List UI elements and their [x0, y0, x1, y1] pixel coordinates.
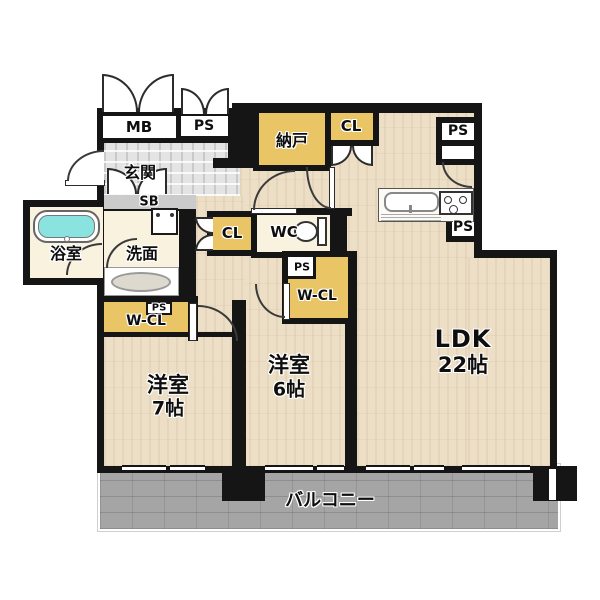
laundry-pan — [151, 208, 178, 235]
label-wcl-left: W-CL — [126, 313, 166, 329]
label-closet-mid: CL — [222, 224, 243, 242]
vanity-basin — [111, 272, 171, 292]
label-room6-size: 6帖 — [273, 375, 305, 402]
mb-door-left — [102, 74, 138, 112]
ps-door-left — [181, 88, 205, 114]
label-mb: MB — [126, 118, 152, 136]
label-balcony: バルコニー — [285, 486, 375, 512]
vanity-counter — [104, 267, 179, 296]
label-ps-kitchen-bottom: PS — [453, 219, 473, 235]
label-ps-wcl-left: PS — [152, 303, 167, 314]
label-wc: WC — [270, 223, 298, 241]
window-ldk-c — [462, 465, 530, 472]
toilet-tank — [317, 217, 327, 246]
ps-door-right — [205, 88, 229, 114]
label-genkan: 玄関 — [124, 159, 156, 183]
wall-washroom-hall — [179, 205, 192, 302]
window-ldk-a — [366, 465, 410, 472]
bathtub-water — [38, 215, 95, 238]
label-ps-kitchen-top: PS — [448, 123, 468, 139]
kitchen-counter — [378, 188, 474, 222]
kitchen-stove — [439, 191, 473, 215]
window-ldk-b — [414, 465, 444, 472]
label-ps-wcl-right: PS — [294, 261, 310, 274]
bathtub — [33, 210, 100, 243]
balcony-pillar — [222, 466, 265, 501]
floor-plan: MB PS 玄関 SB 浴室 洗面 納戸 CL PS PS CL WC PS W… — [0, 0, 600, 600]
room7-door-leaf — [189, 303, 197, 341]
label-sb: SB — [139, 195, 158, 210]
window-room6-b — [317, 465, 344, 472]
label-ldk-size: 22帖 — [438, 349, 488, 379]
label-room7-size: 7帖 — [152, 394, 184, 421]
label-ps-top: PS — [194, 118, 214, 134]
label-closet-top: CL — [341, 117, 362, 135]
balcony-divider-slit — [549, 469, 556, 500]
kitchen-counter-front — [381, 212, 441, 221]
window-room7-a — [122, 465, 166, 472]
label-wcl-right: W-CL — [297, 288, 337, 304]
mb-door-right — [138, 74, 174, 112]
window-room7-b — [170, 465, 205, 472]
toilet — [294, 217, 328, 247]
label-nando: 納戸 — [276, 127, 308, 151]
label-washroom: 洗面 — [126, 240, 158, 264]
window-room6-a — [265, 465, 313, 472]
entrance-door-swing — [67, 150, 104, 181]
label-bathroom: 浴室 — [50, 240, 82, 264]
